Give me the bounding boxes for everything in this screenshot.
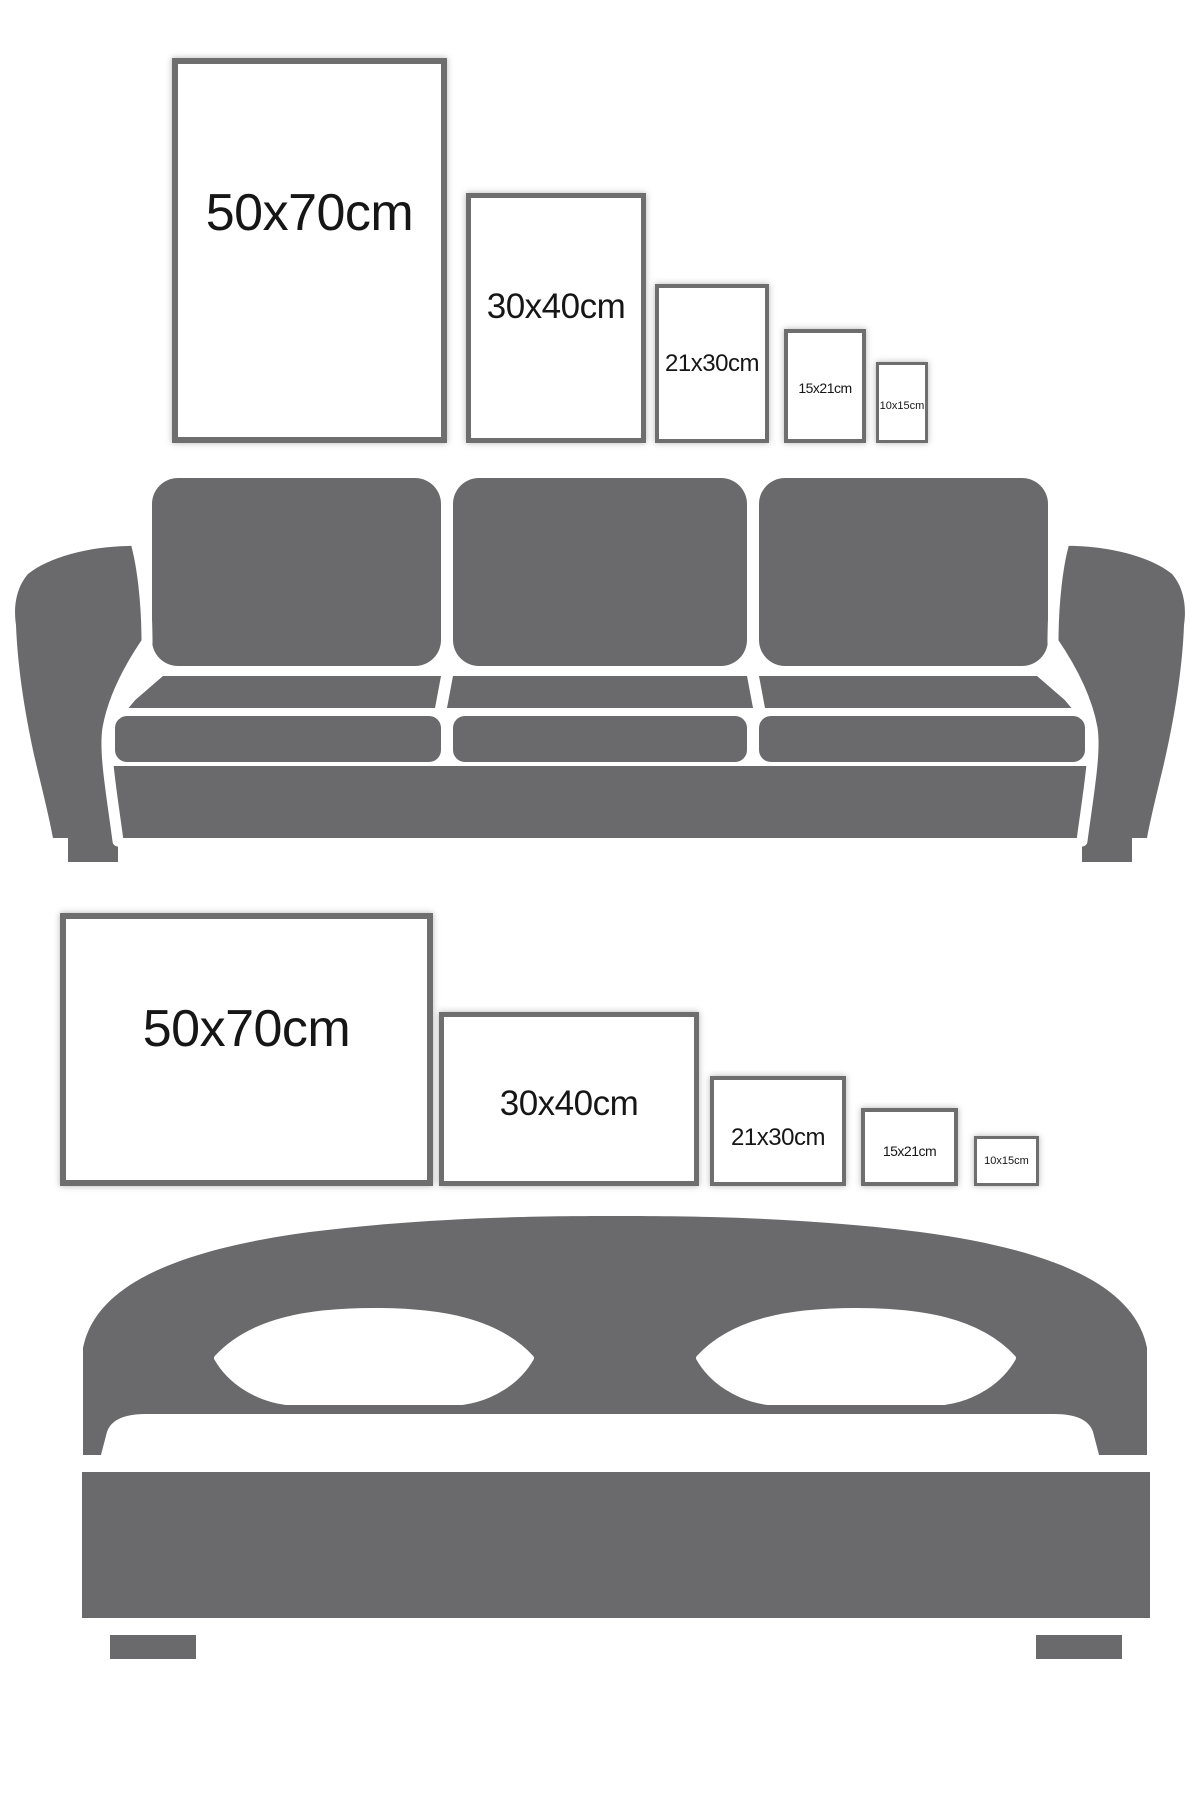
- frame-landscape-30x40: 30x40cm: [439, 1012, 699, 1186]
- bed-icon: [0, 1195, 1200, 1675]
- frame-portrait-50x70: 50x70cm: [172, 58, 447, 443]
- sofa-icon: [0, 405, 1200, 880]
- frame-size-label: 21x30cm: [714, 1124, 842, 1152]
- frame-size-label: 50x70cm: [178, 183, 441, 243]
- frame-landscape-21x30: 21x30cm: [710, 1076, 846, 1186]
- frame-size-label: 10x15cm: [977, 1155, 1036, 1167]
- frame-size-label: 30x40cm: [471, 287, 641, 327]
- frame-landscape-50x70: 50x70cm: [60, 913, 433, 1186]
- frame-size-label: 15x21cm: [865, 1143, 954, 1159]
- size-comparison-diagram: 50x70cm 30x40cm 21x30cm 15x21cm 10x15cm: [0, 0, 1200, 1800]
- frame-size-label: 30x40cm: [444, 1084, 694, 1124]
- frame-landscape-15x21: 15x21cm: [861, 1108, 958, 1186]
- frame-size-label: 50x70cm: [66, 999, 427, 1059]
- frame-size-label: 21x30cm: [659, 350, 765, 378]
- frame-size-label: 15x21cm: [788, 380, 862, 396]
- frame-landscape-10x15: 10x15cm: [974, 1136, 1039, 1186]
